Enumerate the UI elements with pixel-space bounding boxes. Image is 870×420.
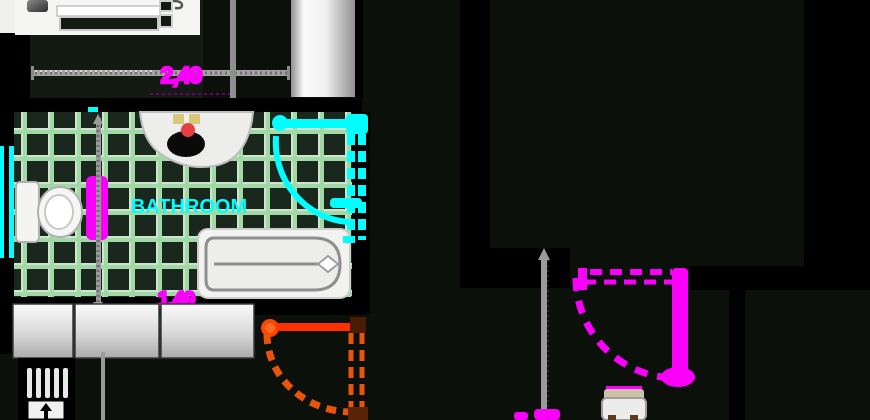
svg-text:2,49: 2,49 <box>161 62 202 88</box>
svg-text:BATHROOM: BATHROOM <box>131 196 247 218</box>
